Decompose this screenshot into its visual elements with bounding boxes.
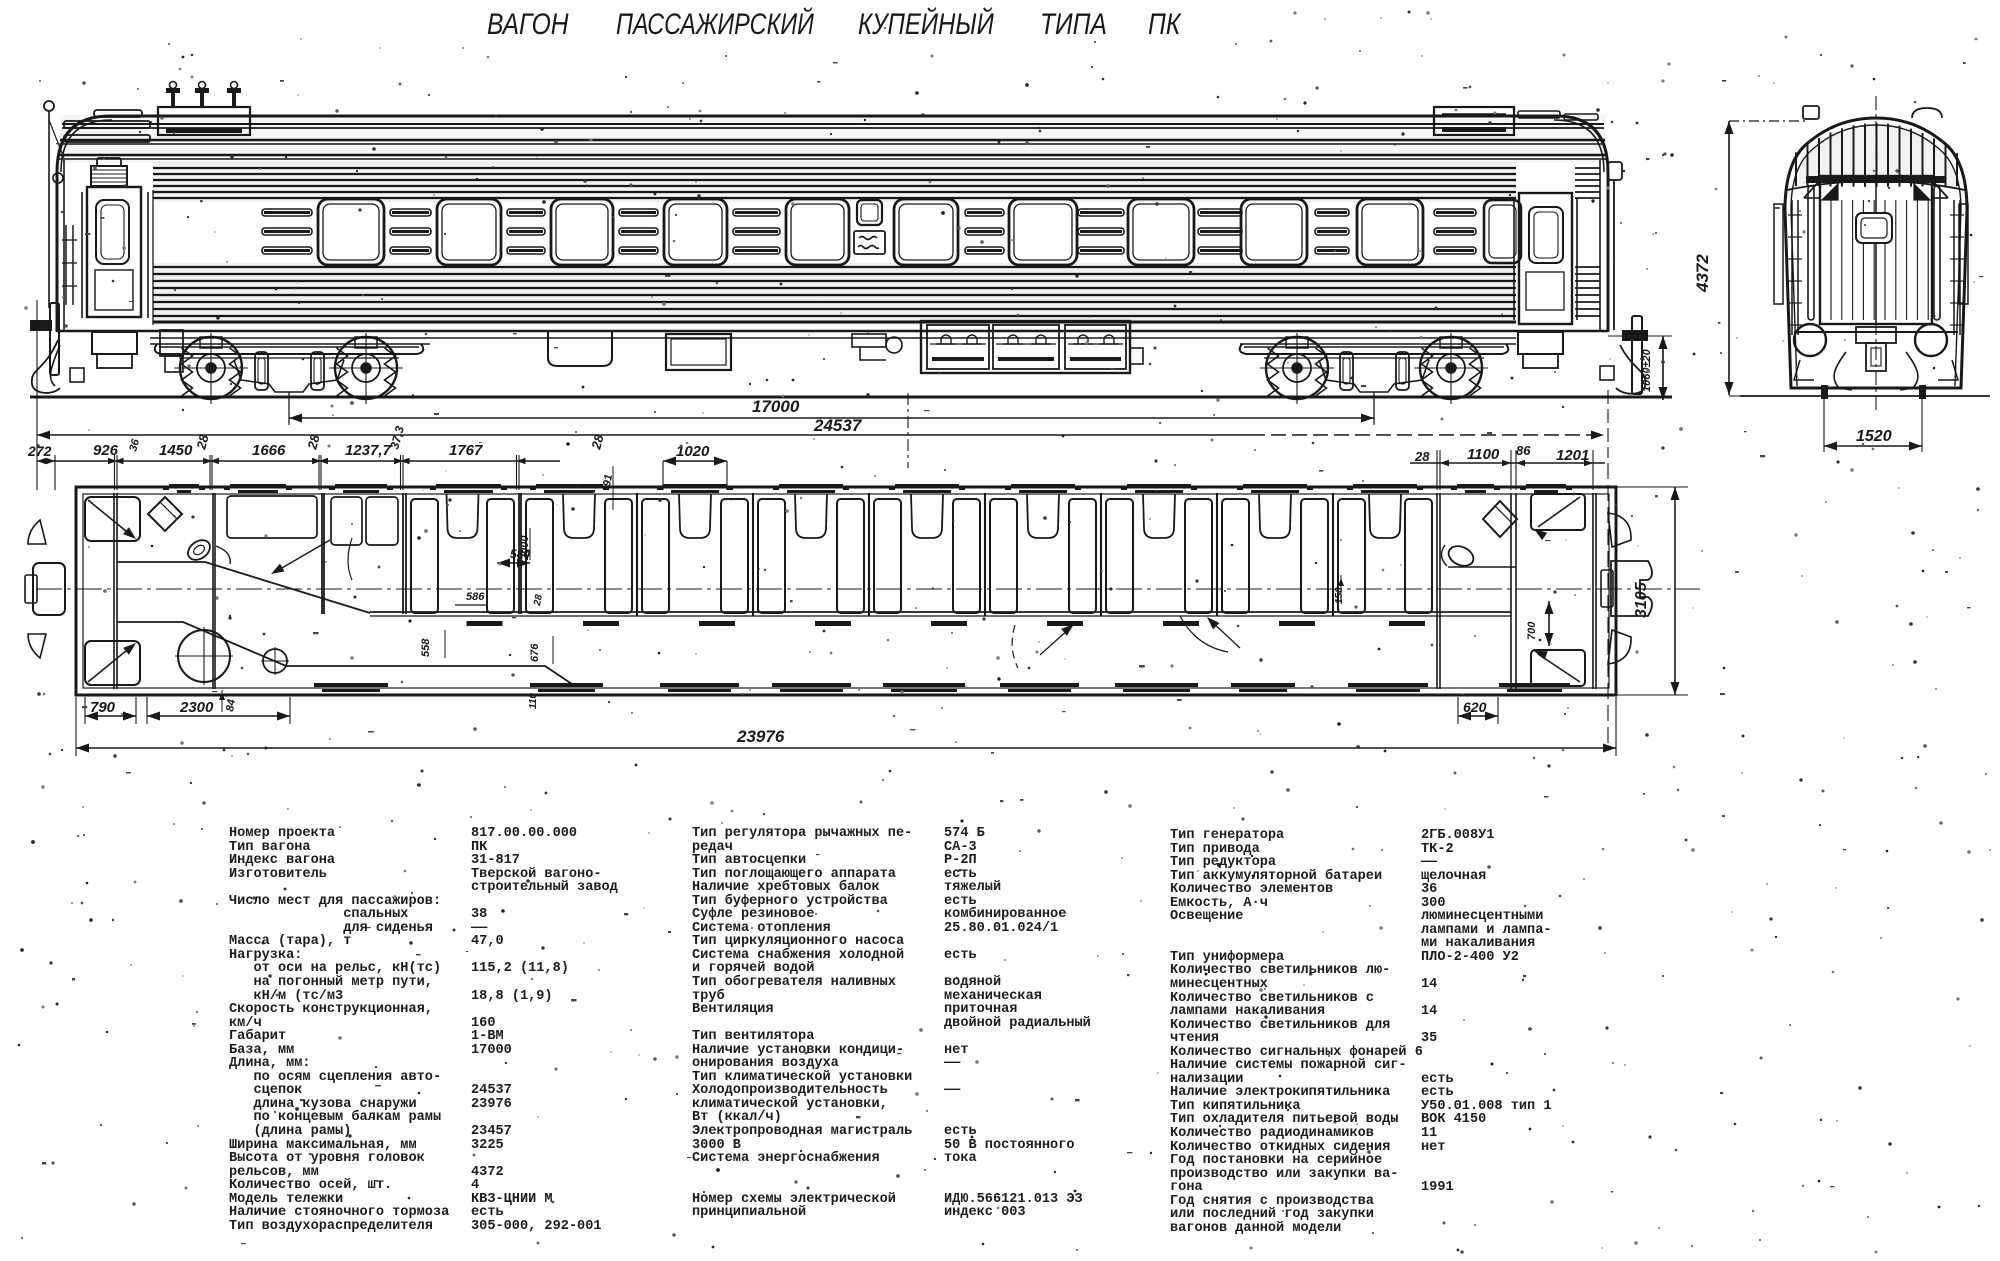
svg-text:4372: 4372 bbox=[1693, 254, 1712, 293]
svg-text:1237,7: 1237,7 bbox=[345, 442, 392, 459]
svg-text:23976: 23976 bbox=[736, 727, 785, 746]
svg-text:150: 150 bbox=[1334, 587, 1345, 604]
svg-text:28: 28 bbox=[532, 593, 545, 607]
svg-text:1767: 1767 bbox=[449, 442, 483, 459]
svg-text:28: 28 bbox=[1414, 449, 1430, 464]
svg-text:580: 580 bbox=[510, 547, 530, 561]
svg-text:700: 700 bbox=[1526, 621, 1538, 640]
svg-text:1520: 1520 bbox=[1856, 428, 1892, 445]
svg-text:17000: 17000 bbox=[752, 397, 800, 416]
svg-text:110: 110 bbox=[528, 693, 539, 709]
svg-text:1450: 1450 bbox=[159, 442, 193, 459]
svg-text:586: 586 bbox=[466, 591, 485, 603]
svg-text:1100: 1100 bbox=[1467, 446, 1500, 463]
svg-text:558: 558 bbox=[420, 638, 432, 657]
svg-text:2300: 2300 bbox=[179, 699, 214, 716]
svg-text:790: 790 bbox=[90, 699, 116, 716]
svg-text:1666: 1666 bbox=[252, 442, 286, 459]
svg-text:84: 84 bbox=[224, 698, 238, 712]
svg-text:620: 620 bbox=[1463, 699, 1487, 715]
svg-text:676: 676 bbox=[529, 643, 541, 662]
svg-text:3105: 3105 bbox=[1633, 581, 1650, 618]
svg-text:24537: 24537 bbox=[813, 416, 863, 435]
svg-text:37,3: 37,3 bbox=[387, 424, 407, 450]
svg-text:926: 926 bbox=[93, 442, 119, 459]
svg-text:36: 36 bbox=[127, 437, 142, 453]
svg-text:86: 86 bbox=[1516, 443, 1531, 458]
